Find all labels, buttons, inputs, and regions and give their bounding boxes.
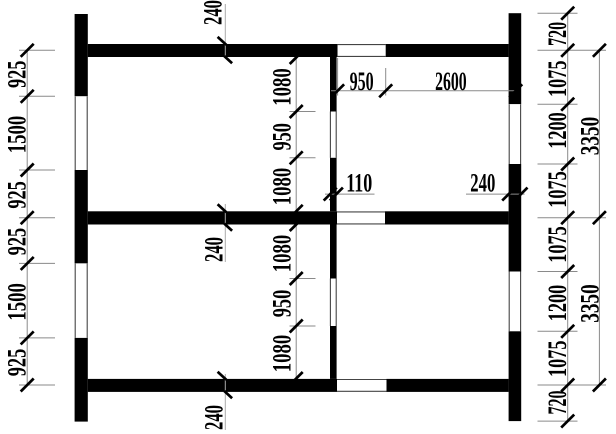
svg-text:1200: 1200 [543,112,572,149]
svg-text:925: 925 [3,349,32,377]
svg-text:1080: 1080 [268,68,297,106]
svg-text:1080: 1080 [268,235,297,273]
svg-text:2600: 2600 [435,67,467,96]
svg-text:1080: 1080 [268,168,297,206]
svg-text:1075: 1075 [543,60,572,97]
svg-text:1075: 1075 [543,171,572,208]
svg-text:925: 925 [3,181,32,209]
svg-text:950: 950 [268,123,297,151]
svg-text:925: 925 [3,228,32,256]
svg-text:720: 720 [543,22,572,46]
svg-text:1500: 1500 [3,116,32,154]
svg-text:3350: 3350 [576,284,605,323]
svg-text:240: 240 [200,405,229,430]
svg-text:925: 925 [3,61,32,89]
svg-text:1500: 1500 [3,283,32,321]
svg-text:240: 240 [199,0,228,25]
svg-text:720: 720 [543,391,572,415]
svg-text:1075: 1075 [543,341,572,378]
svg-text:1080: 1080 [268,335,297,373]
svg-text:950: 950 [350,67,374,96]
svg-text:950: 950 [268,290,297,318]
svg-text:110: 110 [346,169,372,198]
svg-text:1200: 1200 [543,285,572,322]
svg-text:3350: 3350 [576,117,605,156]
svg-text:1075: 1075 [543,226,572,263]
svg-text:240: 240 [470,169,495,198]
svg-text:240: 240 [200,237,229,262]
